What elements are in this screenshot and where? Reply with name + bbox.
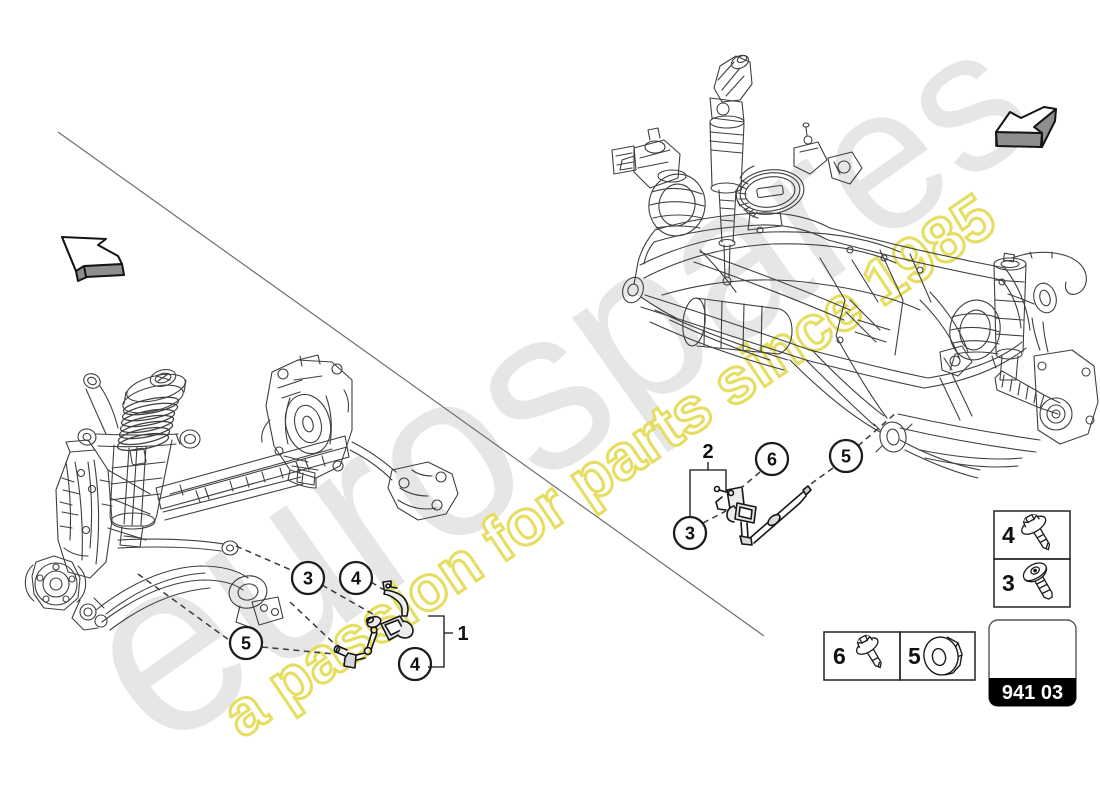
svg-text:5: 5 <box>841 447 851 467</box>
svg-text:6: 6 <box>833 643 846 669</box>
svg-text:5: 5 <box>908 643 921 669</box>
svg-text:4: 4 <box>1002 522 1015 548</box>
svg-text:941 03: 941 03 <box>1002 682 1063 704</box>
svg-text:3: 3 <box>303 569 313 589</box>
svg-text:3: 3 <box>685 524 695 544</box>
svg-text:3: 3 <box>1002 570 1015 596</box>
svg-text:4: 4 <box>351 569 361 589</box>
svg-text:6: 6 <box>767 450 777 470</box>
svg-text:5: 5 <box>241 634 251 654</box>
svg-text:4: 4 <box>410 655 420 675</box>
svg-text:1: 1 <box>457 623 468 645</box>
svg-text:2: 2 <box>702 441 713 463</box>
